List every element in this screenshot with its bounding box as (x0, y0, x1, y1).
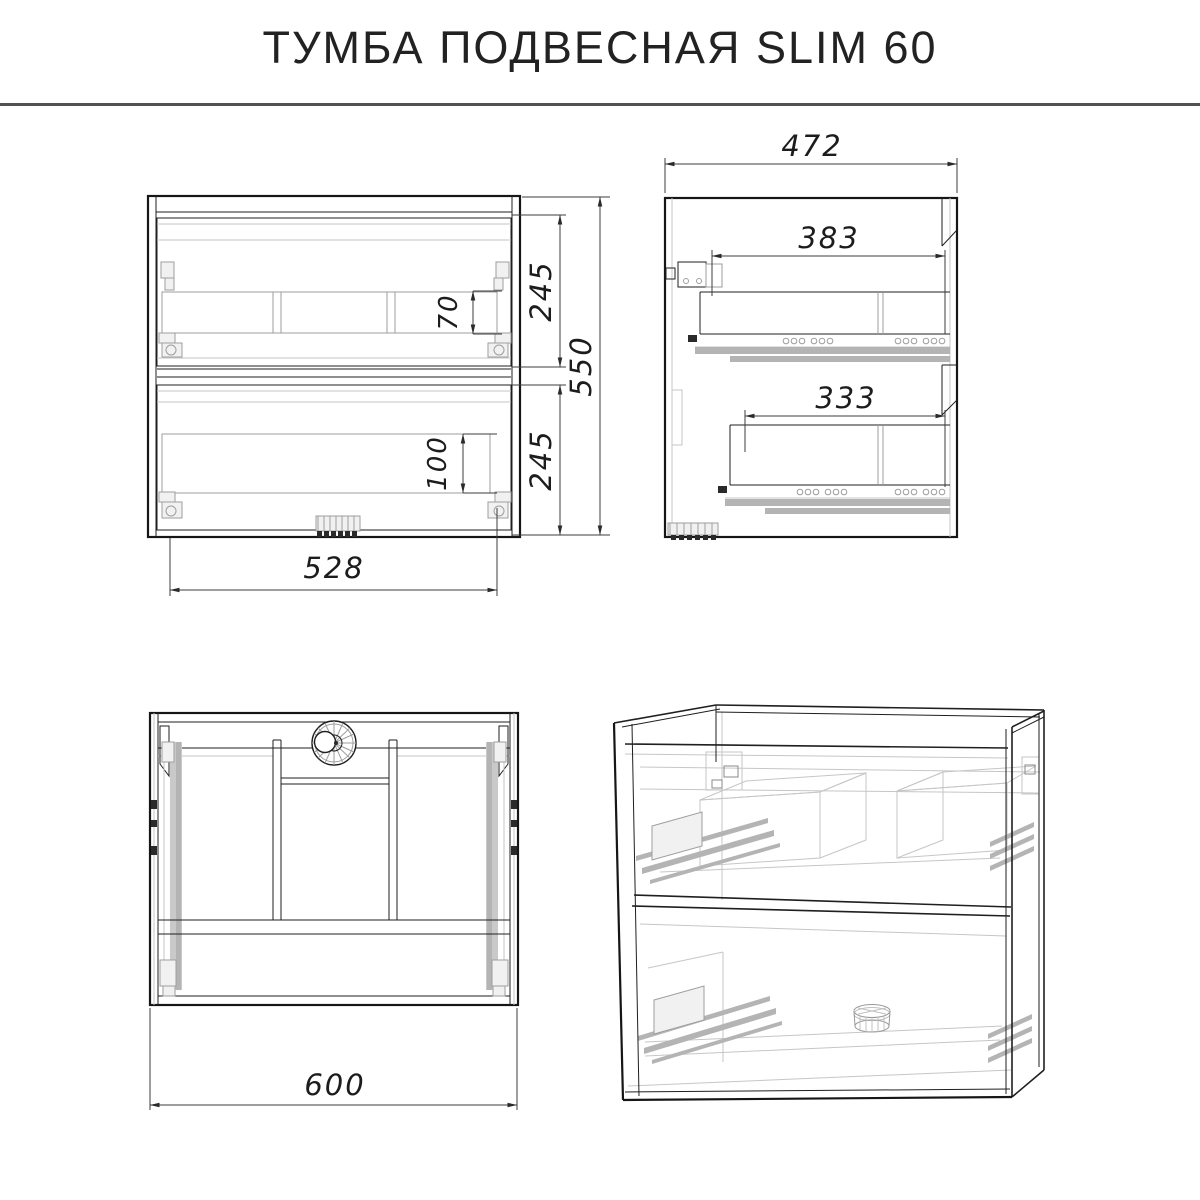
dim-front-total-height: 550 (564, 335, 598, 396)
top-view-dimensions: 600 (150, 1008, 517, 1110)
front-view: 245 245 550 528 70 100 (148, 196, 610, 596)
drain-iso-icon (854, 1005, 890, 1033)
mounting-comb-icon (316, 516, 360, 537)
isometric-view (614, 705, 1044, 1100)
top-view: 600 (150, 713, 518, 1110)
dim-front-bottom-inset: 100 (423, 435, 453, 491)
dim-side-depth: 472 (781, 129, 842, 163)
side-view: 472 383 333 (665, 129, 957, 540)
side-view-dimensions: 472 383 333 (665, 129, 957, 487)
technical-drawing-canvas: 245 245 550 528 70 100 (0, 0, 1200, 1200)
dim-front-drawer-top-height: 245 (524, 260, 558, 321)
dim-top-total-width: 600 (304, 1068, 365, 1102)
slide-holes-top (783, 338, 945, 344)
dim-front-top-inset: 70 (434, 293, 464, 330)
dim-side-bottom-slide: 333 (815, 381, 876, 415)
dim-front-drawer-bottom-height: 245 (524, 429, 558, 490)
drawer-divider-boxes (700, 766, 1036, 866)
slide-holes-bottom (797, 489, 945, 495)
drain-hole-icon (312, 721, 356, 765)
drawing-page: ТУМБА ПОДВЕСНАЯ SLIM 60 (0, 0, 1200, 1200)
dim-front-inner-width: 528 (303, 551, 364, 585)
dim-side-top-slide: 383 (798, 221, 859, 255)
